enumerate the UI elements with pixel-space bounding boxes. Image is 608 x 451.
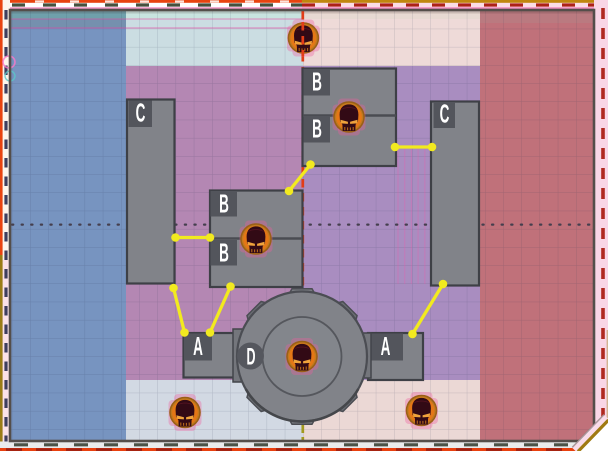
svg-text:D: D (246, 344, 255, 370)
svg-text:A: A (193, 332, 203, 361)
svg-text:C: C (136, 99, 146, 128)
svg-text:B: B (219, 239, 229, 268)
svg-text:C: C (440, 100, 450, 129)
svg-text:B: B (312, 115, 322, 144)
svg-text:B: B (219, 190, 229, 219)
svg-text:B: B (312, 68, 322, 97)
svg-text:A: A (381, 332, 391, 361)
